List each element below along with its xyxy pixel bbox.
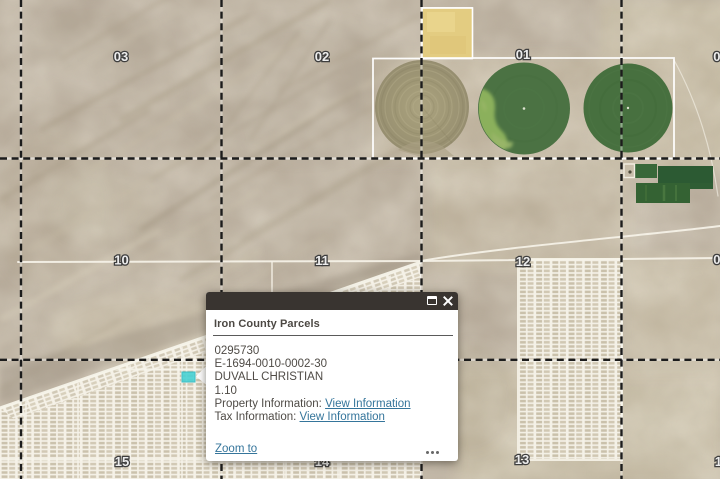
svg-text:01: 01	[516, 47, 530, 62]
svg-text:10: 10	[114, 253, 128, 268]
svg-text:12: 12	[516, 254, 530, 269]
svg-text:15: 15	[115, 454, 129, 469]
svg-text:11: 11	[315, 253, 329, 268]
svg-text:03: 03	[114, 49, 128, 64]
svg-text:06: 06	[713, 49, 720, 64]
svg-text:13: 13	[515, 452, 529, 467]
svg-text:18: 18	[715, 454, 720, 469]
svg-text:07: 07	[713, 252, 720, 267]
svg-text:02: 02	[315, 49, 329, 64]
